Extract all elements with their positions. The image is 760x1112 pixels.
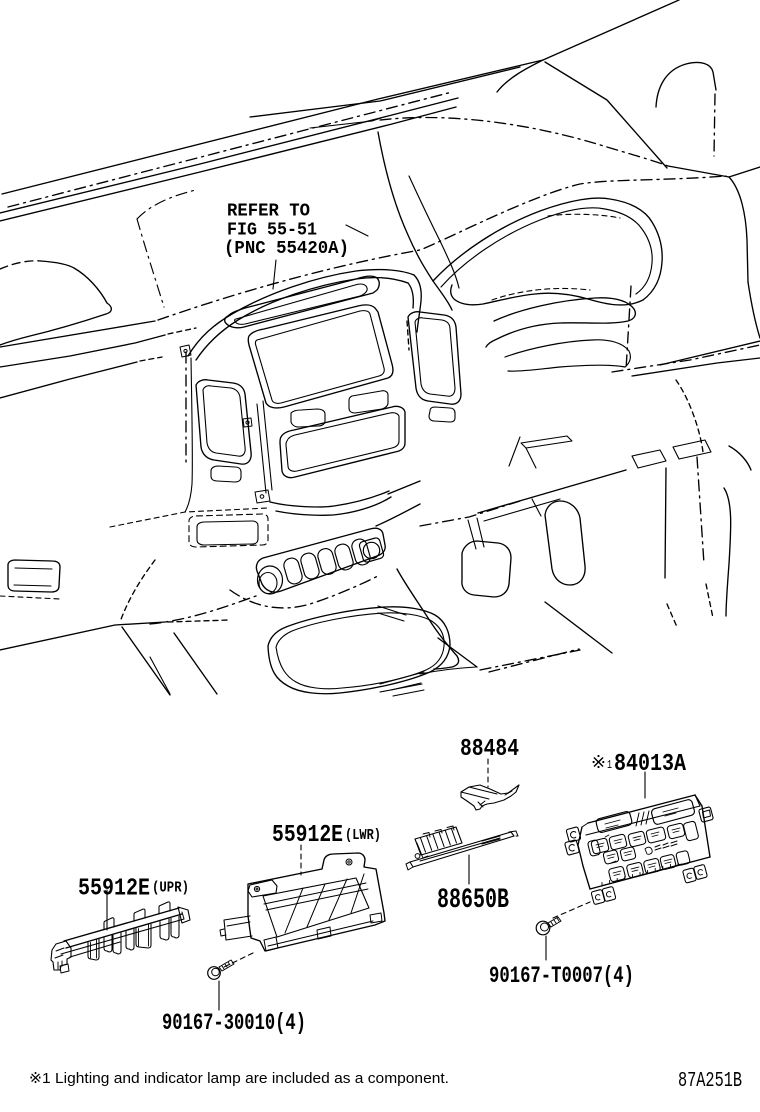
svg-text:88484: 88484 bbox=[460, 736, 519, 763]
svg-text:55912E: 55912E bbox=[78, 876, 150, 903]
svg-text:(LWR): (LWR) bbox=[345, 827, 381, 844]
svg-text:FIG 55-51: FIG 55-51 bbox=[227, 221, 317, 241]
svg-text:(UPR): (UPR) bbox=[152, 880, 189, 897]
svg-text:88650B: 88650B bbox=[437, 885, 509, 916]
svg-text:※: ※ bbox=[591, 754, 606, 774]
svg-text:90167-30010(4): 90167-30010(4) bbox=[162, 1010, 306, 1036]
svg-text:REFER TO: REFER TO bbox=[227, 202, 310, 222]
svg-text:1: 1 bbox=[607, 758, 612, 772]
svg-text:87A251B: 87A251B bbox=[678, 1070, 742, 1093]
svg-text:※1 Lighting and indicator lamp: ※1 Lighting and indicator lamp are inclu… bbox=[29, 1070, 449, 1087]
svg-text:84013A: 84013A bbox=[614, 751, 686, 778]
svg-text:(PNC 55420A): (PNC 55420A) bbox=[224, 239, 349, 259]
svg-text:90167-T0007(4): 90167-T0007(4) bbox=[489, 963, 634, 989]
svg-text:55912E: 55912E bbox=[272, 822, 343, 849]
